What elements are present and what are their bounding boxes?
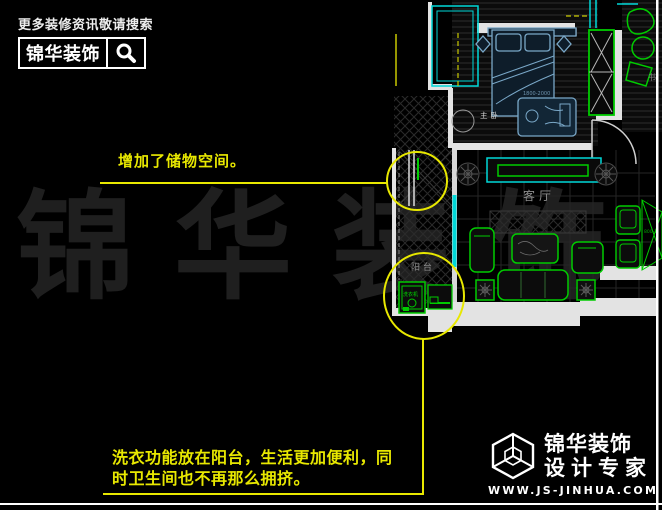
side-table: [476, 280, 494, 300]
plant-icon: [457, 163, 479, 185]
laundry-annotation: 洗衣功能放在阳台，生活更加便利，同 时卫生间也不再那么拥挤。: [112, 447, 393, 489]
room-label-master-bedroom: 主卧: [480, 110, 501, 120]
balcony-floor-hatch: [394, 96, 452, 312]
footer-tagline: 设计专家: [544, 456, 652, 480]
frame-right-border: [656, 0, 659, 510]
poster-canvas: 锦华装饰: [0, 0, 662, 510]
search-icon: [108, 39, 144, 67]
rug: [490, 211, 586, 233]
storage-annotation: 增加了储物空间。: [118, 150, 246, 171]
footer-website: WWW.JS-JINHUA.COM: [488, 484, 656, 497]
header-tagline: 更多装修资讯敬请搜索: [18, 14, 153, 33]
footer-brand-name: 锦华装饰: [544, 432, 652, 456]
frame-bottom-border: [0, 503, 662, 505]
footer-logo-block: 锦华装饰 设计专家 WWW.JS-JINHUA.COM: [488, 432, 656, 497]
tv-cabinet: [487, 158, 601, 182]
room-label-study: 书: [648, 72, 656, 82]
side-table: [577, 280, 595, 300]
header-search-box: 锦华装饰: [18, 37, 146, 69]
plant-icon: [595, 163, 617, 185]
washer-label: 洗衣机: [403, 291, 418, 298]
header-brand-name: 锦华装饰: [20, 40, 106, 66]
balcony-cabinet: [428, 285, 452, 309]
laundry-annotation-line2: 时卫生间也不再那么拥挤。: [112, 468, 393, 489]
header-brand-block: 更多装修资讯敬请搜索 锦华装饰: [18, 14, 153, 69]
dining-dimension-label: 800-1: [644, 229, 657, 235]
room-label-balcony: 阳台: [411, 261, 435, 273]
room-label-living-room: 客厅: [523, 188, 555, 203]
wardrobe: [589, 30, 614, 115]
cube-logo-icon: [488, 432, 538, 480]
laundry-annotation-line1: 洗衣功能放在阳台，生活更加便利，同: [112, 447, 393, 468]
bed-dimension-label: 1800-2000: [523, 91, 550, 97]
